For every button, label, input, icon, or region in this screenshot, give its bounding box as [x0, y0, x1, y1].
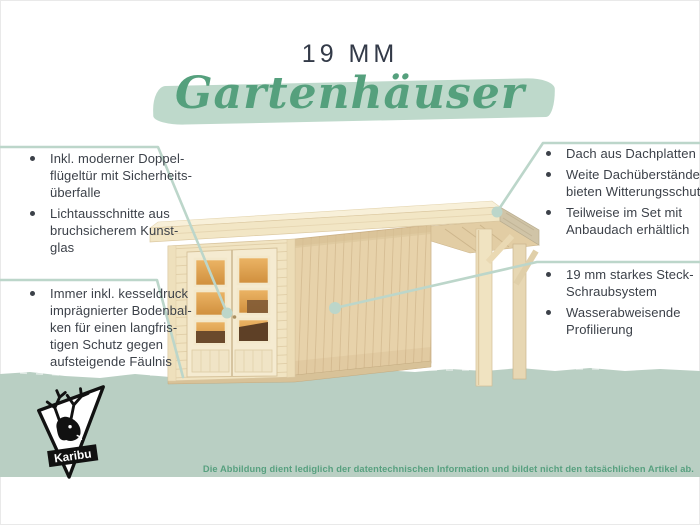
- callout-dot-roof-corner: [492, 207, 503, 218]
- feature-bullet-item: Teilweise im Set mit Anbaudach erhältlic…: [540, 204, 700, 238]
- script-title: Gartenhäuser: [175, 68, 525, 119]
- disclaimer-text: Die Abbildung dient lediglich der datent…: [0, 464, 694, 474]
- feature-list-right-bottom: 19 mm starkes Steck- SchraubsystemWasser…: [540, 266, 700, 342]
- feature-bullet-item: Weite Dachüberstände bieten Witterungssc…: [540, 166, 700, 200]
- callout-dot-side-wall: [329, 302, 341, 314]
- callout-dot-door-glass: [222, 308, 233, 319]
- feature-bullet-item: Dach aus Dachplatten: [540, 145, 700, 162]
- infographic-root: 19 MM Gartenhäuser Inkl. moderner Doppel…: [0, 0, 700, 525]
- feature-bullet-item: Wasserabweisende Profilierung: [540, 304, 700, 338]
- page-title: 19 MM: [0, 40, 700, 69]
- feature-list-right-top: Dach aus DachplattenWeite Dachüberstände…: [540, 145, 700, 242]
- feature-bullet-item: 19 mm starkes Steck- Schraubsystem: [540, 266, 700, 300]
- feature-list-left-bottom: Immer inkl. kesseldruck imprägnierter Bo…: [24, 285, 209, 374]
- feature-list-left-top: Inkl. moderner Doppel- flügeltür mit Sic…: [24, 150, 209, 260]
- script-title-wrap: Gartenhäuser: [0, 68, 700, 120]
- feature-bullet-item: Lichtausschnitte aus bruchsicherem Kunst…: [24, 205, 209, 256]
- feature-bullet-item: Inkl. moderner Doppel- flügeltür mit Sic…: [24, 150, 209, 201]
- feature-bullet-item: Immer inkl. kesseldruck imprägnierter Bo…: [24, 285, 209, 370]
